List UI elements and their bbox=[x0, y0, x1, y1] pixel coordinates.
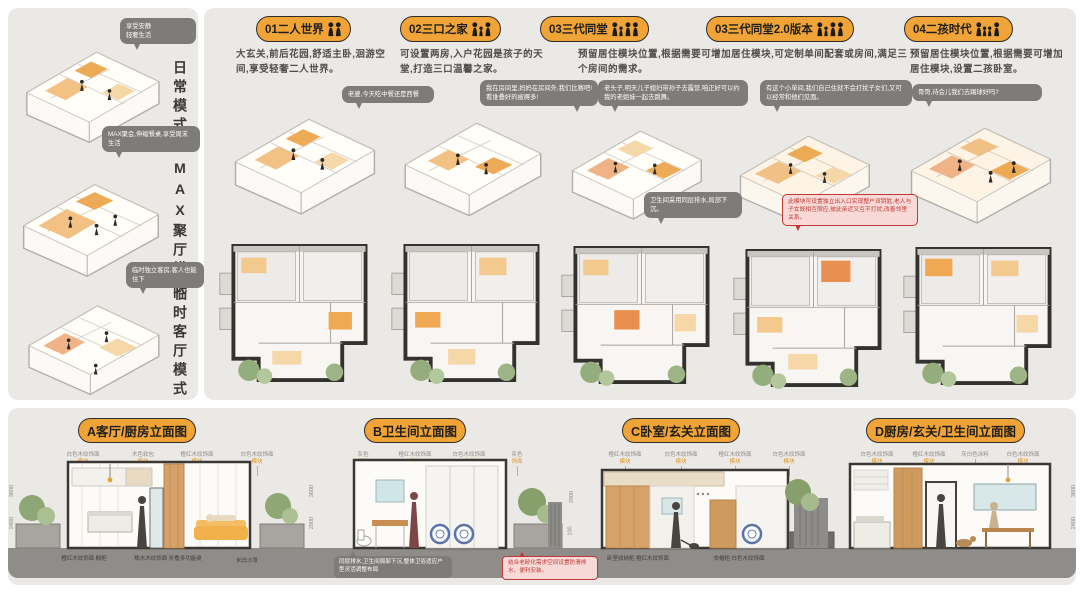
title-text: A客厅/厨房立面图 bbox=[87, 421, 187, 440]
badge-scenario-1: 01二人世界 bbox=[256, 16, 351, 42]
scenario-4-bubble-elder: 有这个小单间,我们自己住就不会打扰子女们,又可以经常和他们见面。 bbox=[760, 80, 912, 106]
elevation-d: D厨房/玄关/卫生间立面图 白色木纹饰面模块 橙红木纹饰面模块 灰白色涂料 白色… bbox=[844, 408, 1076, 585]
scenario-panel: 01二人世界 02三口之家 03三代同堂 03三代同堂2.0版本 04二孩时代 … bbox=[204, 8, 1076, 400]
mode-bubble-daily: 享受安静 轻奢生活 bbox=[120, 18, 196, 44]
axon-view-guest bbox=[14, 288, 172, 398]
elevation-c: C卧室/玄关立面图 橙红木纹饰面模块 白色木纹饰面模块 橙红木纹饰面模块 白色木… bbox=[574, 408, 840, 585]
elevation-b-drawing bbox=[316, 444, 568, 552]
elevation-b-gray-note: 同层排水,卫生间局部下沉,整体卫浴适应户型灵活调整布局 bbox=[334, 556, 452, 578]
family-of-three-icon bbox=[472, 22, 493, 37]
elevation-c-title: C卧室/玄关立面图 bbox=[622, 418, 740, 443]
dimension: 3600 bbox=[1071, 485, 1077, 497]
dimension: 2400 bbox=[1071, 517, 1077, 529]
elevation-b: B卫生间立面图 灰色饰面 橙红木纹饰面模块 白色木纹饰面柜体 灰色饰面 3600… bbox=[314, 408, 570, 585]
badge-scenario-5: 04二孩时代 bbox=[904, 16, 1013, 42]
mode-panel: 享受安静 轻奢生活 日常模式 MAX聚会,伸缩餐桌,享受周末生活 MAX聚厅模式… bbox=[8, 8, 198, 400]
mode-label-guest: 临时客厅模式 bbox=[170, 286, 190, 400]
elevation-a-bottom-label: 米白沙发 bbox=[222, 558, 272, 566]
axon-view-scenario-2 bbox=[392, 104, 552, 220]
scenario-5-bubble-kid: 哥哥,待会儿我们去踢球好吗? bbox=[912, 84, 1042, 101]
badge-label: 01二人世界 bbox=[265, 21, 324, 37]
elevation-a-title: A客厅/厨房立面图 bbox=[78, 418, 196, 443]
elevation-b-pink-note: 结合老龄化需求空间设置防滑排水、便利安装。 bbox=[502, 556, 598, 580]
badge-label: 04二孩时代 bbox=[913, 21, 972, 37]
mode-bubble-guest: 临时独立客房,客人也能住下 bbox=[126, 262, 204, 288]
elevation-b-title: B卫生间立面图 bbox=[364, 418, 466, 443]
title-text: D厨房/玄关/卫生间立面图 bbox=[875, 421, 1016, 440]
elevation-d-title: D厨房/玄关/卫生间立面图 bbox=[866, 418, 1025, 443]
mode-label-daily: 日常模式 bbox=[170, 60, 190, 136]
three-generations-icon bbox=[612, 22, 640, 37]
dimension: 100 bbox=[568, 526, 574, 535]
couple-icon bbox=[328, 22, 342, 37]
scenario-3-drainage-note: 卫生间采用同层排水,局部下沉。 bbox=[644, 192, 742, 218]
three-generations-2-icon bbox=[817, 22, 845, 37]
badge-label: 03三代同堂2.0版本 bbox=[715, 21, 813, 37]
mode-bubble-max: MAX聚会,伸缩餐桌,享受周末生活 bbox=[102, 126, 200, 152]
scenario-4-module-note: 此模块可设置独立出入口实现整户双钥匙,老人与子女既相互照应,彼此亲近又互不打扰,… bbox=[782, 194, 918, 226]
dimension: 2900 bbox=[569, 491, 575, 503]
title-text: C卧室/玄关立面图 bbox=[631, 421, 731, 440]
badge-label: 03三代同堂 bbox=[549, 21, 608, 37]
badge-scenario-3: 03三代同堂 bbox=[540, 16, 649, 42]
scenario-2-bubble-husband: 老婆,今天吃中餐还是西餐 bbox=[342, 86, 434, 103]
floor-plan-scenario-5 bbox=[898, 236, 1068, 396]
scenario-2-bubble-kid: 我在房间里,妈妈在房间外,我们比赛吧!看谁叠好的被褥多! bbox=[480, 80, 598, 106]
scenario-3-bubble-grandma: 老头子,明天儿子媳妇带孙子去露营,咱正好可以约我的老姐妹一起去跳舞。 bbox=[598, 80, 748, 106]
elevation-a-drawing bbox=[14, 444, 306, 552]
elevation-a: A客厅/厨房立面图 白色木纹饰面模块 木色软包模块 橙红木纹饰面模块 白色木纹饰… bbox=[12, 408, 310, 585]
scenario-3-4-desc: 预留居住模块位置,根据需要可增加居住模块,可定制单间配套或房间,满足三个房间的需… bbox=[578, 48, 914, 77]
design-board: 享受安静 轻奢生活 日常模式 MAX聚会,伸缩餐桌,享受周末生活 MAX聚厅模式… bbox=[0, 0, 1080, 591]
scenario-5-desc: 预留居住模块位置,根据需要可增加居住模块,设置二孩卧室。 bbox=[910, 48, 1068, 77]
scenario-2-desc: 可设置两房,入户花园是孩子的天堂,打造三口温馨之家。 bbox=[400, 48, 554, 77]
elevation-a-bottom-label: 橡木木纹饰面 折叠多功能桌 bbox=[130, 556, 206, 564]
title-text: B卫生间立面图 bbox=[373, 421, 457, 440]
elevation-panel: A客厅/厨房立面图 白色木纹饰面模块 木色软包模块 橙红木纹饰面模块 白色木纹饰… bbox=[8, 408, 1076, 585]
scenario-1-desc: 大玄关,前后花园,舒适主卧,洄游空间,享受轻奢二人世界。 bbox=[236, 48, 390, 77]
dimension: 2900 bbox=[309, 517, 315, 529]
elevation-a-bottom-label: 橙红木纹饰面 橱柜 bbox=[52, 556, 116, 564]
badge-label: 02三口之家 bbox=[409, 21, 468, 37]
elevation-c-bottom-label: 衣帽柜 白色木纹饰面 bbox=[704, 556, 774, 564]
floor-plan-scenario-1 bbox=[214, 232, 384, 394]
badge-scenario-4: 03三代同堂2.0版本 bbox=[706, 16, 854, 42]
axon-view-scenario-5 bbox=[898, 108, 1062, 228]
dimension: 3600 bbox=[309, 485, 315, 497]
elevation-c-drawing bbox=[576, 444, 838, 552]
elevation-c-bottom-label: 卧室收纳柜 橙红木纹饰面 bbox=[598, 556, 678, 564]
floor-plan-scenario-4 bbox=[728, 238, 898, 398]
floor-plan-scenario-2 bbox=[386, 232, 556, 394]
floor-plan-scenario-3 bbox=[556, 234, 726, 396]
axon-view-scenario-1 bbox=[222, 100, 386, 218]
elevation-d-drawing bbox=[844, 444, 1066, 552]
badge-scenario-2: 02三口之家 bbox=[400, 16, 501, 42]
family-of-four-icon bbox=[976, 22, 1004, 37]
